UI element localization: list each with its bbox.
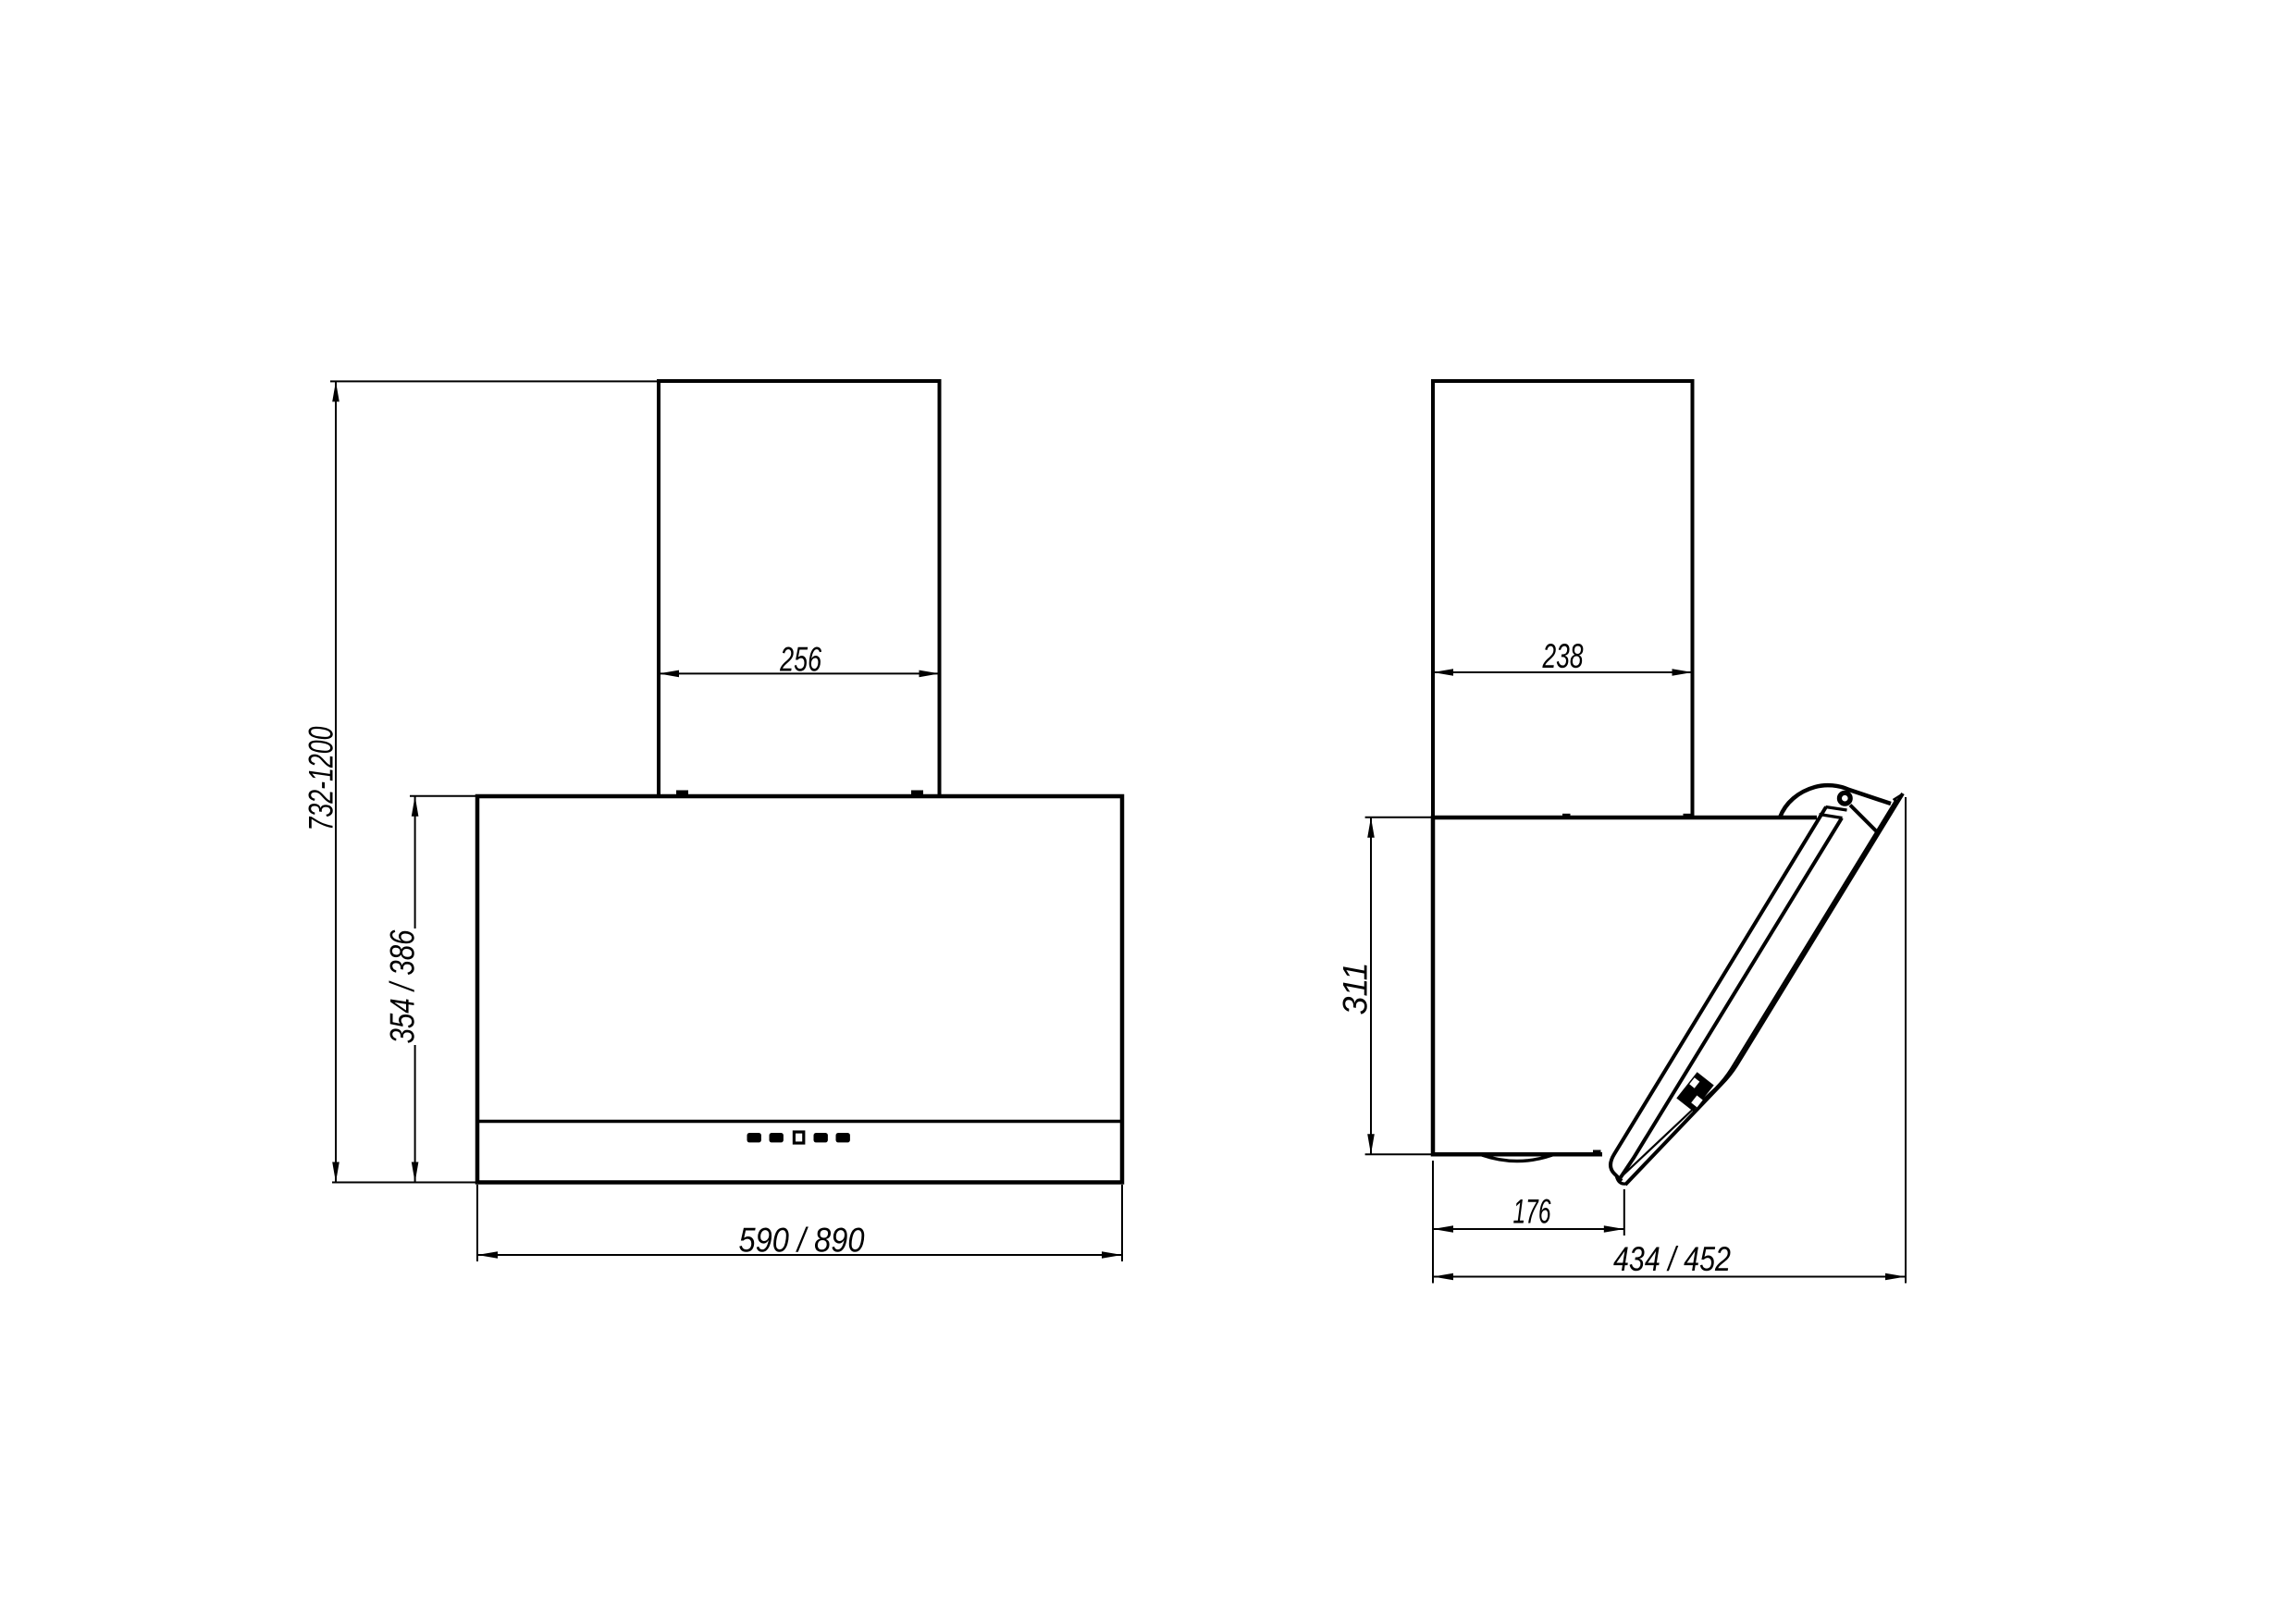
svg-text:354 / 386: 354 / 386 — [384, 929, 422, 1043]
svg-text:434 / 452: 434 / 452 — [1613, 1240, 1731, 1278]
svg-text:590 / 890: 590 / 890 — [739, 1222, 865, 1260]
svg-text:176: 176 — [1513, 1193, 1551, 1231]
svg-text:238: 238 — [1542, 637, 1584, 675]
svg-text:256: 256 — [779, 641, 821, 679]
svg-text:311: 311 — [1337, 963, 1375, 1015]
svg-text:732-1200: 732-1200 — [302, 726, 340, 830]
